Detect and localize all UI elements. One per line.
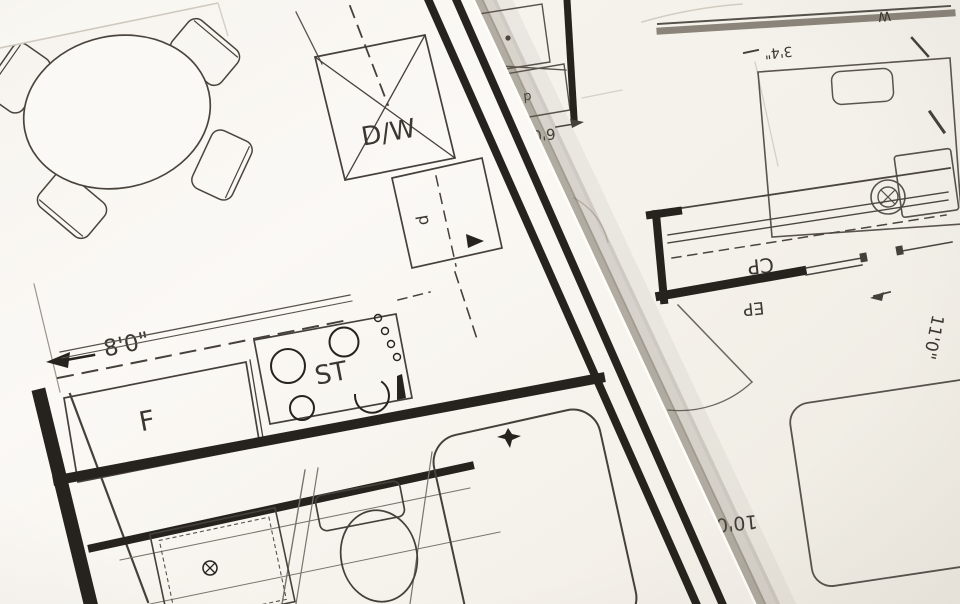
blueprint-photo: W 3'4" d 6'0" CP EP 11'0" 10'0 — [0, 0, 960, 604]
blueprint-scene: W 3'4" d 6'0" CP EP 11'0" 10'0 — [0, 0, 960, 604]
photo-vignette — [0, 0, 960, 604]
